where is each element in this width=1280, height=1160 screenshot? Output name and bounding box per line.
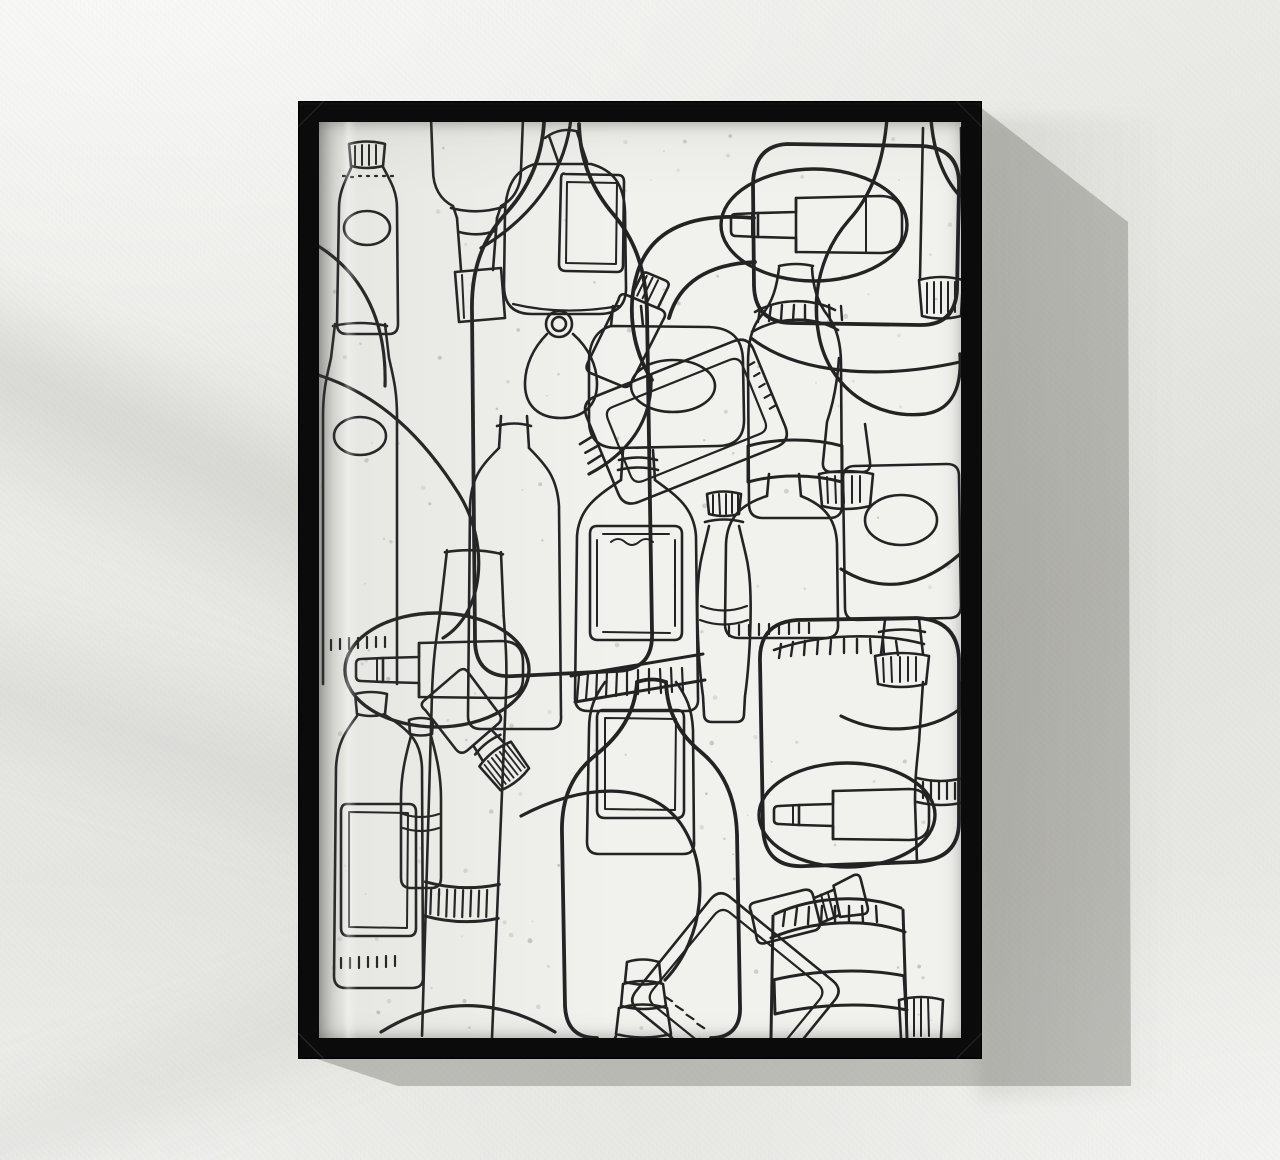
scene: [0, 0, 1280, 1160]
diamond-flask-bottom: [626, 887, 845, 1038]
bottle-capped-top-left: [337, 142, 398, 335]
bottle-inverted-rib-plug-top-right: [919, 128, 961, 319]
oval-framed-bottle-bottom-right: [759, 763, 935, 867]
wine-bottle-mid-left: [468, 416, 561, 729]
poster-frame: [298, 101, 982, 1059]
round-body-bottle-right: [816, 122, 960, 509]
tilted-square-flask: [565, 335, 791, 514]
bottle-inverted-square-cap: [431, 122, 523, 322]
bottle-pattern-artwork: [319, 122, 961, 1038]
flagon-with-oval-label: [589, 306, 744, 448]
bottle-fragment-right-edge: [915, 682, 961, 862]
poster-paper: [319, 122, 961, 1038]
whiskey-bottle-with-label: [571, 450, 705, 711]
giant-horizontal-bottle-outline: [632, 144, 959, 380]
oval-framed-bottle-top-right: [721, 169, 907, 281]
tick-collar-cylinder-bottom-right: [771, 899, 907, 1038]
tall-leaning-bottle: [420, 549, 511, 1038]
big-label-bottle-bottom-center: [587, 682, 694, 854]
